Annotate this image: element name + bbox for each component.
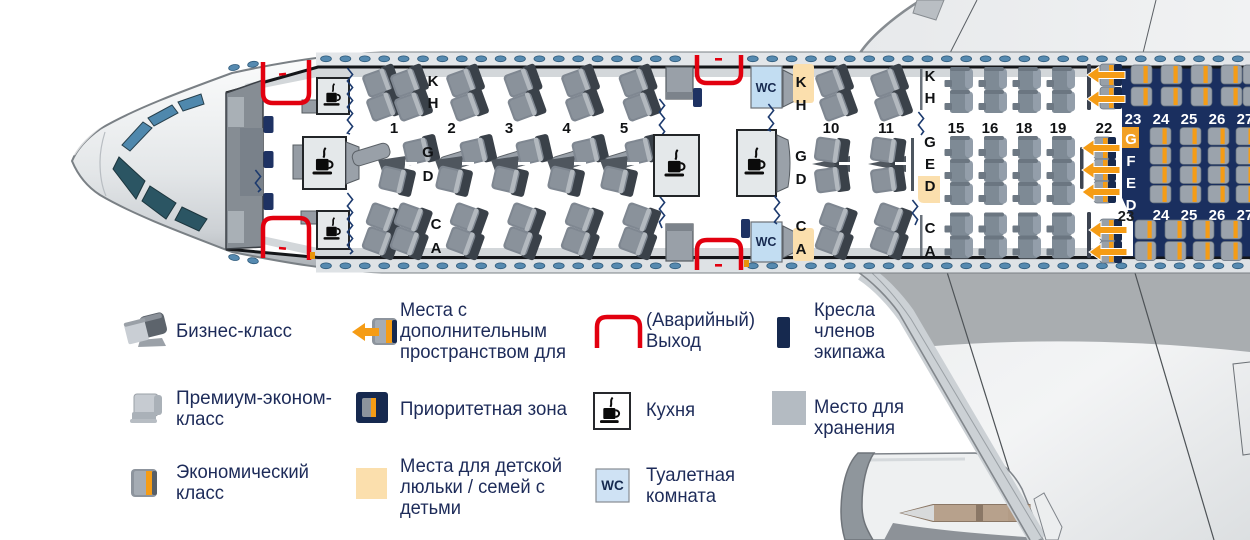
svg-text:A: A xyxy=(796,241,807,258)
svg-text:5: 5 xyxy=(620,120,628,137)
svg-text:детьми: детьми xyxy=(400,497,461,519)
svg-text:25: 25 xyxy=(1181,111,1198,128)
svg-text:K: K xyxy=(796,74,807,91)
svg-text:D: D xyxy=(925,178,936,195)
svg-text:23: 23 xyxy=(1118,208,1135,225)
svg-text:23: 23 xyxy=(1125,111,1142,128)
svg-text:C: C xyxy=(431,216,442,233)
svg-text:4: 4 xyxy=(562,120,571,137)
svg-text:WC: WC xyxy=(756,235,777,249)
svg-text:Кресла: Кресла xyxy=(814,299,875,321)
svg-text:Приоритетная зона: Приоритетная зона xyxy=(400,398,567,420)
svg-text:E: E xyxy=(1126,175,1136,192)
svg-text:WC: WC xyxy=(601,478,624,493)
svg-text:дополнительным: дополнительным xyxy=(400,320,547,342)
svg-text:16: 16 xyxy=(982,120,999,137)
svg-text:19: 19 xyxy=(1050,120,1067,137)
svg-text:членов: членов xyxy=(814,320,875,342)
svg-text:пространством для: пространством для xyxy=(400,341,566,363)
svg-text:D: D xyxy=(796,171,807,188)
svg-text:18: 18 xyxy=(1016,120,1033,137)
svg-text:10: 10 xyxy=(823,120,840,137)
svg-text:G: G xyxy=(924,134,936,151)
svg-text:E: E xyxy=(925,156,935,173)
svg-text:24: 24 xyxy=(1153,111,1170,128)
svg-text:H: H xyxy=(428,95,439,112)
svg-text:K: K xyxy=(925,68,936,85)
svg-text:комната: комната xyxy=(646,485,716,507)
svg-text:Места для детской: Места для детской xyxy=(400,455,562,477)
svg-text:11: 11 xyxy=(878,120,894,137)
svg-text:15: 15 xyxy=(948,120,965,137)
svg-text:G: G xyxy=(1125,131,1137,148)
svg-text:26: 26 xyxy=(1209,111,1226,128)
svg-text:2: 2 xyxy=(447,120,455,137)
svg-text:Выход: Выход xyxy=(646,330,702,352)
svg-text:класс: класс xyxy=(176,408,224,430)
svg-text:H: H xyxy=(925,90,936,107)
svg-text:3: 3 xyxy=(505,120,513,137)
svg-text:F: F xyxy=(1126,153,1135,170)
svg-text:Место для: Место для xyxy=(814,396,904,418)
svg-text:1: 1 xyxy=(390,120,398,137)
svg-text:A: A xyxy=(431,240,442,257)
svg-text:люльки / семей с: люльки / семей с xyxy=(400,476,545,498)
svg-text:(Аварийный): (Аварийный) xyxy=(646,309,755,331)
svg-text:хранения: хранения xyxy=(814,417,895,439)
svg-text:A: A xyxy=(925,243,936,260)
svg-text:Бизнес-класс: Бизнес-класс xyxy=(176,320,292,342)
svg-text:Премиум-эконом-: Премиум-эконом- xyxy=(176,387,332,409)
svg-text:G: G xyxy=(422,144,434,161)
svg-text:Кухня: Кухня xyxy=(646,399,695,421)
svg-text:H: H xyxy=(796,97,807,114)
svg-text:класс: класс xyxy=(176,482,224,504)
svg-text:G: G xyxy=(795,148,807,165)
svg-text:K: K xyxy=(428,73,439,90)
svg-text:C: C xyxy=(925,220,936,237)
svg-text:Туалетная: Туалетная xyxy=(646,464,735,486)
svg-text:WC: WC xyxy=(756,81,777,95)
svg-text:C: C xyxy=(796,218,807,235)
svg-text:Места с: Места с xyxy=(400,299,467,321)
svg-text:D: D xyxy=(423,168,434,185)
svg-text:Экономический: Экономический xyxy=(176,461,309,483)
svg-text:27: 27 xyxy=(1237,111,1250,128)
svg-text:22: 22 xyxy=(1096,120,1113,137)
svg-text:экипажа: экипажа xyxy=(814,341,885,363)
